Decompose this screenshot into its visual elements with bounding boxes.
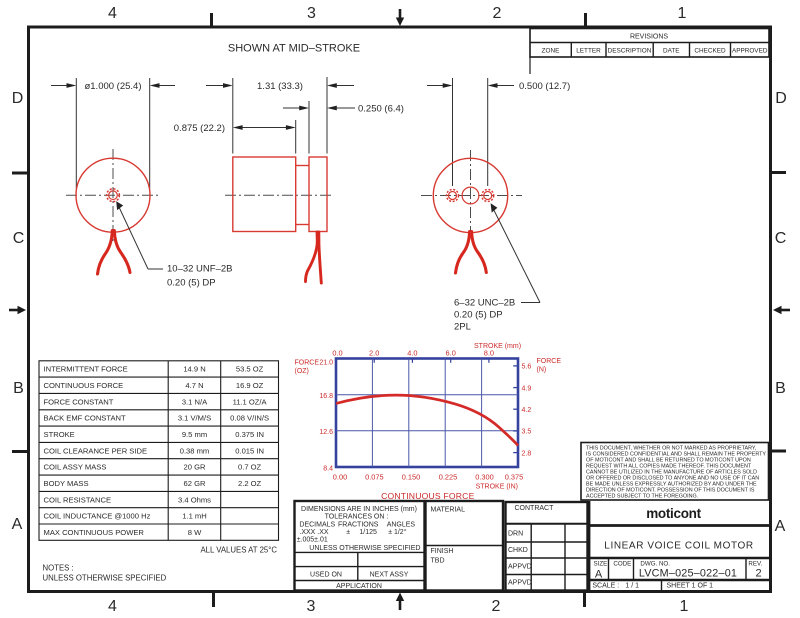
svg-text:0.375 IN: 0.375 IN	[235, 430, 264, 439]
svg-text:UNLESS OTHERWISE SPECIFIED: UNLESS OTHERWISE SPECIFIED	[43, 574, 167, 583]
svg-text:MATERIAL: MATERIAL	[431, 507, 466, 514]
svg-text:3: 3	[307, 598, 316, 615]
svg-text:8 W: 8 W	[188, 528, 202, 537]
svg-text:CHKD: CHKD	[508, 547, 528, 554]
svg-text:CONTINUOUS FORCE: CONTINUOUS FORCE	[381, 491, 475, 501]
svg-text:DIMENSIONS ARE IN INCHES (mm): DIMENSIONS ARE IN INCHES (mm)	[301, 506, 417, 513]
svg-text:10–32 UNF–2B: 10–32 UNF–2B	[167, 264, 232, 275]
svg-text:INTERMITTENT FORCE: INTERMITTENT FORCE	[44, 365, 128, 374]
svg-text:FORCE CONSTANT: FORCE CONSTANT	[44, 397, 114, 406]
svg-text:0.250 (6.4): 0.250 (6.4)	[358, 104, 404, 115]
svg-text:±.005±.01: ±.005±.01	[297, 536, 328, 543]
svg-text:FRACTIONS: FRACTIONS	[338, 521, 379, 528]
svg-text:FINISH: FINISH	[431, 548, 454, 555]
svg-text:3.4 Ohms: 3.4 Ohms	[178, 495, 211, 504]
svg-text:11.1 OZ/A: 11.1 OZ/A	[233, 397, 268, 406]
svg-text:1: 1	[680, 598, 689, 615]
svg-text:3.1 V/M/S: 3.1 V/M/S	[178, 414, 211, 423]
svg-text:COIL RESISTANCE: COIL RESISTANCE	[44, 495, 112, 504]
svg-text:APPROVED: APPROVED	[732, 48, 768, 55]
svg-text:0.300: 0.300	[475, 473, 494, 482]
svg-text:2: 2	[493, 5, 502, 22]
svg-text:2PL: 2PL	[454, 321, 471, 332]
svg-text:A: A	[595, 569, 603, 581]
svg-text:12.6: 12.6	[319, 429, 333, 436]
svg-text:SHOWN AT MID–STROKE: SHOWN AT MID–STROKE	[228, 43, 360, 55]
svg-text:0.225: 0.225	[439, 473, 458, 482]
svg-text:0.00: 0.00	[333, 473, 347, 482]
svg-text:8.4: 8.4	[323, 465, 333, 472]
svg-text:TBD: TBD	[431, 558, 445, 565]
svg-text:NOTES :: NOTES :	[43, 564, 74, 573]
svg-text:(OZ): (OZ)	[295, 368, 309, 375]
svg-text:COIL INDUCTANCE @1000 Hz: COIL INDUCTANCE @1000 Hz	[44, 512, 151, 521]
svg-text:COIL ASSY MASS: COIL ASSY MASS	[44, 463, 107, 472]
svg-text:± 1/2°: ± 1/2°	[388, 528, 407, 536]
svg-text:A: A	[775, 518, 786, 535]
svg-text:.XXX .XX: .XXX .XX	[299, 529, 329, 536]
svg-text:CONTRACT: CONTRACT	[515, 505, 555, 512]
svg-text:C: C	[775, 230, 787, 247]
svg-text:0.015 IN: 0.015 IN	[235, 446, 264, 455]
svg-text:4: 4	[108, 598, 117, 615]
svg-text:DECIMALS: DECIMALS	[299, 521, 335, 528]
svg-text:A: A	[12, 516, 23, 533]
svg-text:DESCRIPTION: DESCRIPTION	[608, 48, 652, 55]
svg-text:ALL VALUES AT 25°C: ALL VALUES AT 25°C	[200, 546, 277, 555]
svg-text:16.8: 16.8	[319, 393, 333, 400]
svg-text:FORCE: FORCE	[537, 358, 562, 365]
svg-text:DRN: DRN	[508, 531, 523, 538]
svg-text:C: C	[13, 230, 25, 247]
svg-text:0.075: 0.075	[365, 473, 384, 482]
svg-text:21.0: 21.0	[319, 360, 333, 367]
svg-text:1.31 (33.3): 1.31 (33.3)	[257, 81, 303, 92]
svg-text:62 GR: 62 GR	[184, 479, 206, 488]
svg-text:APPLICATION: APPLICATION	[336, 583, 382, 590]
svg-text:0.7 OZ: 0.7 OZ	[238, 463, 262, 472]
svg-text:1: 1	[678, 5, 687, 22]
svg-text:BACK EMF CONSTANT: BACK EMF CONSTANT	[44, 414, 126, 423]
svg-text:0.875 (22.2): 0.875 (22.2)	[174, 123, 225, 134]
svg-text:1/125: 1/125	[359, 529, 377, 536]
svg-text:D: D	[12, 90, 24, 107]
svg-text:6.0: 6.0	[446, 349, 456, 358]
svg-text:LVCM–025–022–01: LVCM–025–022–01	[639, 568, 737, 580]
svg-text:1.1 mH: 1.1 mH	[182, 512, 206, 521]
svg-text:ZONE: ZONE	[542, 48, 560, 55]
svg-text:CHECKED: CHECKED	[694, 48, 726, 55]
svg-text:1 / 1: 1 / 1	[625, 582, 639, 589]
svg-text:CONTINUOUS FORCE: CONTINUOUS FORCE	[44, 381, 124, 390]
svg-text:UNLESS OTHERWISE SPECIFIED: UNLESS OTHERWISE SPECIFIED	[309, 545, 420, 552]
svg-text:0.20 (5) DP: 0.20 (5) DP	[454, 309, 503, 320]
svg-text:SIZE: SIZE	[594, 561, 608, 568]
svg-text:SHEET 1 OF 1: SHEET 1 OF 1	[667, 582, 714, 589]
svg-text:0.20 (5) DP: 0.20 (5) DP	[167, 278, 216, 289]
svg-text:ANGLES: ANGLES	[387, 521, 416, 528]
svg-text:4.9: 4.9	[522, 385, 532, 392]
svg-text:(N): (N)	[537, 367, 547, 374]
svg-text:STROKE: STROKE	[44, 430, 75, 439]
svg-text:14.9 N: 14.9 N	[183, 365, 205, 374]
svg-text:ø1.000 (25.4): ø1.000 (25.4)	[84, 81, 141, 92]
svg-text:20 GR: 20 GR	[184, 463, 206, 472]
svg-text:0.150: 0.150	[402, 473, 421, 482]
svg-text:6–32 UNC–2B: 6–32 UNC–2B	[454, 298, 515, 309]
svg-text:ACCEPTED SUBJECT TO THE FOREGO: ACCEPTED SUBJECT TO THE FOREGOING.	[586, 494, 698, 500]
svg-text:COIL CLEARANCE PER SIDE: COIL CLEARANCE PER SIDE	[44, 446, 148, 455]
svg-text:4.0: 4.0	[407, 349, 417, 358]
svg-text:±: ±	[346, 529, 350, 536]
svg-text:0.500 (12.7): 0.500 (12.7)	[519, 81, 570, 92]
svg-text:STROKE (IN): STROKE (IN)	[476, 484, 518, 491]
svg-text:B: B	[13, 380, 24, 397]
svg-text:4.2: 4.2	[522, 407, 532, 414]
svg-text:0.375: 0.375	[505, 473, 524, 482]
svg-text:3: 3	[307, 5, 316, 22]
svg-text:B: B	[775, 380, 786, 397]
svg-text:2: 2	[755, 568, 761, 580]
svg-text:2.8: 2.8	[522, 450, 532, 457]
svg-text:MAX CONTINUOUS POWER: MAX CONTINUOUS POWER	[44, 528, 145, 537]
svg-text:CODE: CODE	[613, 561, 631, 568]
svg-text:D: D	[775, 90, 787, 107]
svg-text:2.0: 2.0	[369, 349, 379, 358]
svg-text:4: 4	[108, 5, 117, 22]
svg-text:REV.: REV.	[748, 561, 762, 568]
svg-text:5.6: 5.6	[522, 364, 532, 371]
svg-text:LETTER: LETTER	[576, 48, 601, 55]
svg-text:FORCE: FORCE	[295, 360, 320, 367]
svg-text:0.38 mm: 0.38 mm	[180, 446, 210, 455]
svg-text:0.08 V/IN/S: 0.08 V/IN/S	[230, 414, 269, 423]
svg-text:53.5 OZ: 53.5 OZ	[236, 365, 264, 374]
svg-text:DATE: DATE	[663, 48, 680, 55]
svg-text:APPVD: APPVD	[508, 580, 532, 587]
svg-text:8.0: 8.0	[484, 349, 494, 358]
svg-text:2.2 OZ: 2.2 OZ	[238, 479, 262, 488]
svg-text:16.9 OZ: 16.9 OZ	[236, 381, 264, 390]
svg-text:REVISIONS: REVISIONS	[630, 34, 668, 41]
svg-text:2: 2	[492, 598, 501, 615]
svg-text:APPVD: APPVD	[508, 564, 532, 571]
svg-text:STROKE (mm): STROKE (mm)	[474, 343, 521, 350]
svg-text:0.0: 0.0	[332, 349, 342, 358]
svg-text:USED ON: USED ON	[310, 572, 342, 579]
svg-text:LINEAR VOICE COIL MOTOR: LINEAR VOICE COIL MOTOR	[604, 541, 753, 552]
svg-text:moticont: moticont	[646, 506, 701, 521]
svg-text:9.5 mm: 9.5 mm	[182, 430, 207, 439]
svg-text:SCALE :: SCALE :	[592, 582, 619, 589]
svg-text:4.7 N: 4.7 N	[185, 381, 203, 390]
svg-text:BODY MASS: BODY MASS	[44, 479, 89, 488]
svg-text:3.5: 3.5	[522, 429, 532, 436]
svg-text:3.1 N/A: 3.1 N/A	[182, 397, 208, 406]
svg-text:DWG. NO.: DWG. NO.	[640, 561, 670, 568]
svg-text:TOLERANCES ON :: TOLERANCES ON :	[325, 514, 389, 521]
svg-text:NEXT ASSY: NEXT ASSY	[370, 572, 409, 579]
